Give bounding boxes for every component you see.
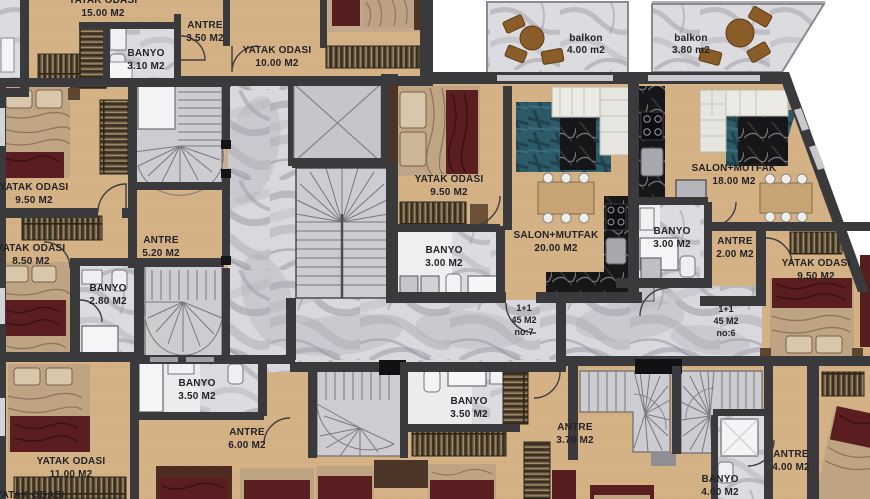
svg-text:YATAK ODASI: YATAK ODASI <box>37 456 106 467</box>
svg-text:YATAK ODASI: YATAK ODASI <box>69 0 138 6</box>
svg-text:9.50 M2: 9.50 M2 <box>797 271 835 282</box>
svg-text:YATAK ODASI: YATAK ODASI <box>0 243 65 254</box>
svg-text:4.00 M2: 4.00 M2 <box>701 487 739 498</box>
svg-text:YATAK ODASI: YATAK ODASI <box>0 182 68 193</box>
svg-text:11.00 M2: 11.00 M2 <box>50 469 93 480</box>
svg-text:balkon: balkon <box>569 33 602 44</box>
svg-text:4.00 m2: 4.00 m2 <box>567 45 605 56</box>
svg-text:BANYO: BANYO <box>425 245 462 256</box>
svg-text:YATAK ODASI: YATAK ODASI <box>0 490 64 499</box>
svg-text:20.00 M2: 20.00 M2 <box>534 243 578 254</box>
svg-text:YATAK ODASI: YATAK ODASI <box>415 174 484 185</box>
svg-text:BANYO: BANYO <box>178 378 215 389</box>
svg-text:8.50 M2: 8.50 M2 <box>12 256 50 267</box>
svg-text:BANYO: BANYO <box>701 474 738 485</box>
svg-text:45 M2: 45 M2 <box>713 316 738 326</box>
svg-text:ANTRE: ANTRE <box>229 427 265 438</box>
svg-text:3.00 M2: 3.00 M2 <box>653 239 691 250</box>
svg-text:ANTRE: ANTRE <box>187 20 223 31</box>
svg-text:BANYO: BANYO <box>127 48 164 59</box>
svg-text:no:6: no:6 <box>717 328 736 338</box>
svg-text:ANTRE: ANTRE <box>557 422 593 433</box>
svg-text:no:7: no:7 <box>515 327 534 337</box>
svg-text:6.00 M2: 6.00 M2 <box>228 440 266 451</box>
svg-text:YATAK ODASI: YATAK ODASI <box>243 45 312 56</box>
svg-text:3.50 M2: 3.50 M2 <box>186 33 224 44</box>
svg-text:ANTRE: ANTRE <box>773 449 809 460</box>
svg-text:ANTRE: ANTRE <box>717 236 753 247</box>
svg-text:ANTRE: ANTRE <box>143 235 179 246</box>
svg-text:BANYO: BANYO <box>450 396 487 407</box>
svg-text:3.50 M2: 3.50 M2 <box>178 391 216 402</box>
svg-text:9.50 M2: 9.50 M2 <box>430 187 468 198</box>
svg-text:SALON+MUTFAK: SALON+MUTFAK <box>514 230 599 241</box>
svg-text:3.50 M2: 3.50 M2 <box>450 409 488 420</box>
svg-text:SALON+MUTFAK: SALON+MUTFAK <box>692 163 777 174</box>
svg-text:2.80 M2: 2.80 M2 <box>89 296 127 307</box>
svg-text:2.00 M2: 2.00 M2 <box>716 249 754 260</box>
svg-text:15.00 M2: 15.00 M2 <box>81 8 125 19</box>
svg-text:BANYO: BANYO <box>653 226 690 237</box>
svg-text:9.50 M2: 9.50 M2 <box>15 195 53 206</box>
svg-text:3.80 m2: 3.80 m2 <box>672 45 710 56</box>
svg-text:5.20 M2: 5.20 M2 <box>142 248 180 259</box>
svg-text:3.10 M2: 3.10 M2 <box>127 61 165 72</box>
svg-text:45 M2: 45 M2 <box>511 315 536 325</box>
svg-text:3.00 M2: 3.00 M2 <box>425 258 463 269</box>
svg-text:BANYO: BANYO <box>89 283 126 294</box>
svg-text:1+1: 1+1 <box>718 304 733 314</box>
svg-text:18.00 M2: 18.00 M2 <box>712 176 756 187</box>
svg-text:YATAK ODASI: YATAK ODASI <box>782 258 851 269</box>
svg-text:4.00 M2: 4.00 M2 <box>772 462 810 473</box>
svg-text:1+1: 1+1 <box>516 303 531 313</box>
svg-text:10.00 M2: 10.00 M2 <box>255 58 299 69</box>
svg-text:3.70 M2: 3.70 M2 <box>556 435 594 446</box>
svg-text:balkon: balkon <box>674 33 707 44</box>
